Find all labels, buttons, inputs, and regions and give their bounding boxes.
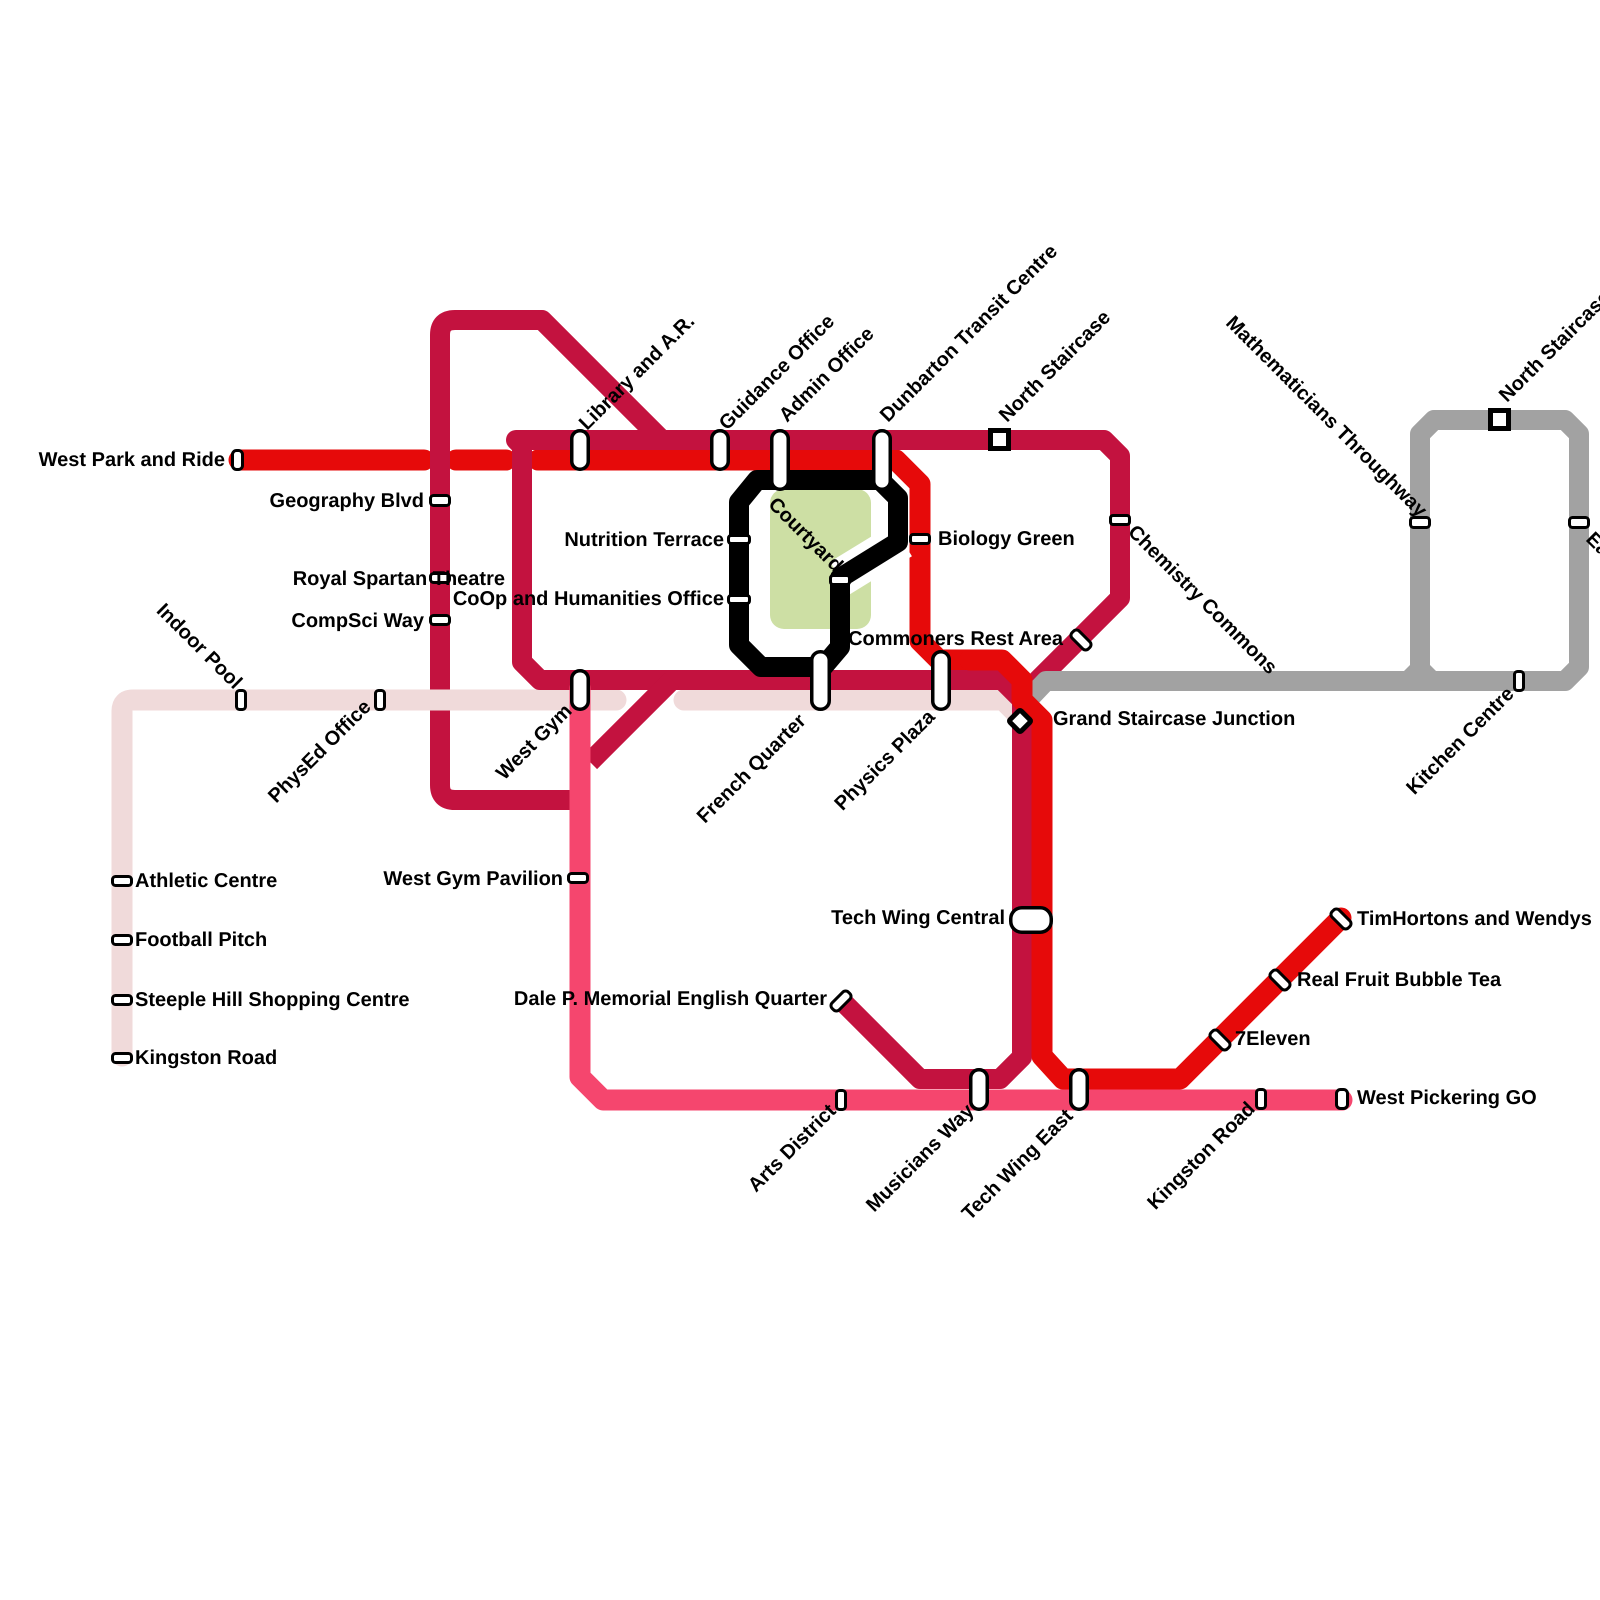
svg-text:Royal Spartan Theatre: Royal Spartan Theatre — [293, 568, 505, 590]
svg-text:Nutrition Terrace: Nutrition Terrace — [564, 529, 724, 551]
svg-text:CoOp and Humanities Office: CoOp and Humanities Office — [453, 588, 724, 610]
svg-text:CompSci Way: CompSci Way — [291, 610, 424, 632]
svg-text:Commoners Rest Area: Commoners Rest Area — [848, 628, 1064, 650]
svg-text:West Pickering GO: West Pickering GO — [1357, 1087, 1537, 1109]
svg-text:Grand Staircase Junction: Grand Staircase Junction — [1053, 708, 1295, 730]
svg-text:Dale P. Memorial English Quart: Dale P. Memorial English Quarter — [514, 988, 827, 1010]
svg-text:Football Pitch: Football Pitch — [135, 929, 267, 951]
svg-text:West Park and Ride: West Park and Ride — [39, 449, 225, 471]
svg-text:Geography Blvd: Geography Blvd — [270, 490, 424, 512]
svg-text:Kingston Road: Kingston Road — [135, 1047, 277, 1069]
svg-text:Biology Green: Biology Green — [938, 528, 1075, 550]
svg-text:Tech Wing Central: Tech Wing Central — [831, 907, 1005, 929]
svg-text:Steeple Hill Shopping Centre: Steeple Hill Shopping Centre — [135, 989, 409, 1011]
svg-text:Athletic Centre: Athletic Centre — [135, 870, 277, 892]
svg-text:West Gym Pavilion: West Gym Pavilion — [383, 868, 563, 890]
svg-text:TimHortons and Wendys: TimHortons and Wendys — [1357, 908, 1592, 930]
svg-text:Real Fruit Bubble Tea: Real Fruit Bubble Tea — [1297, 969, 1502, 991]
svg-text:7Eleven: 7Eleven — [1235, 1028, 1311, 1050]
